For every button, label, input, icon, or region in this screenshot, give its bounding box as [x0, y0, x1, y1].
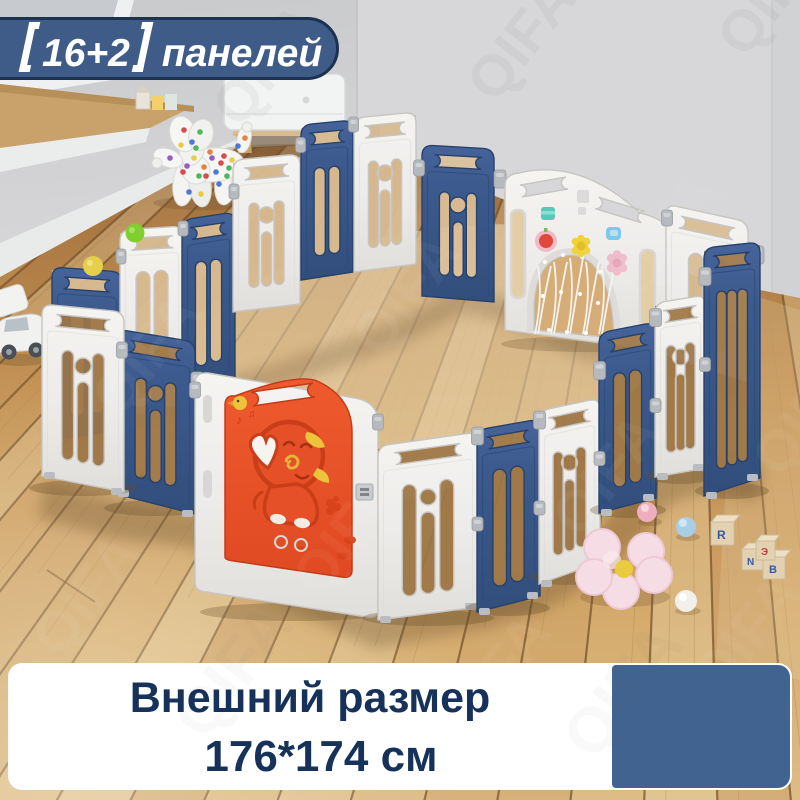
- svg-text:N: N: [747, 557, 754, 568]
- svg-text:♪: ♪: [236, 413, 242, 427]
- svg-text:♫: ♫: [248, 409, 256, 420]
- svg-text:Э: Э: [761, 547, 768, 558]
- svg-text:R: R: [717, 528, 726, 542]
